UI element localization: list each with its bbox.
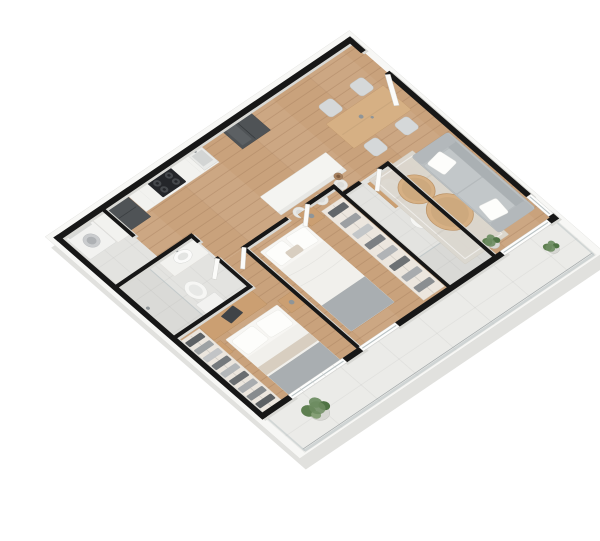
floor-plan-render (0, 0, 600, 541)
floor-plan-scene: 3D isometric floor plan of a two-bedroom… (0, 0, 600, 541)
